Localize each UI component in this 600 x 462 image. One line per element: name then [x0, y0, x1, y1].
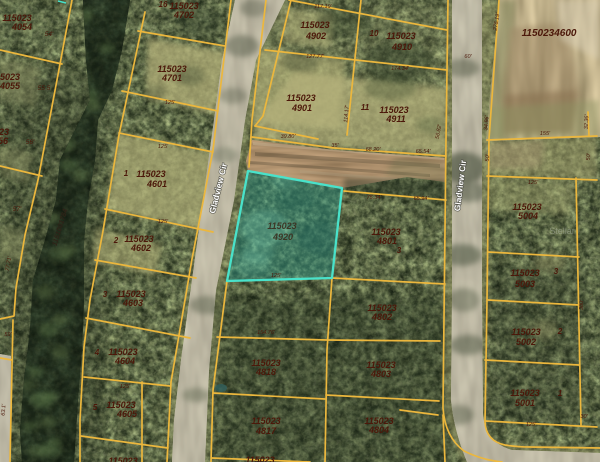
svg-text:4604: 4604 [114, 356, 135, 366]
svg-text:115023: 115023 [511, 327, 540, 337]
svg-text:4054: 4054 [11, 22, 32, 32]
svg-text:11: 11 [361, 103, 370, 112]
svg-text:115023: 115023 [386, 31, 415, 41]
svg-text:4902: 4902 [305, 31, 326, 41]
svg-text:2: 2 [557, 327, 563, 336]
svg-text:115023: 115023 [136, 169, 165, 179]
svg-text:117.19': 117.19' [314, 4, 332, 10]
svg-text:32.36': 32.36' [584, 113, 591, 129]
svg-text:68.20': 68.20' [366, 147, 382, 153]
svg-text:4701: 4701 [161, 73, 182, 83]
svg-text:Stellar: Stellar [549, 226, 575, 236]
svg-text:154.76': 154.76' [257, 330, 276, 336]
svg-text:1150234600: 1150234600 [522, 28, 577, 39]
svg-text:10: 10 [370, 29, 379, 38]
svg-text:1: 1 [124, 169, 129, 178]
svg-text:4910: 4910 [391, 42, 412, 52]
svg-text:155': 155' [540, 131, 551, 137]
svg-text:35': 35' [331, 143, 339, 149]
svg-text:4702: 4702 [173, 10, 194, 20]
svg-text:59': 59' [4, 332, 12, 338]
svg-text:1: 1 [558, 389, 563, 398]
svg-text:4605: 4605 [116, 409, 138, 419]
svg-text:4602: 4602 [130, 243, 151, 253]
svg-text:115023: 115023 [251, 416, 280, 426]
svg-text:54': 54' [45, 31, 54, 38]
svg-text:5002: 5002 [516, 337, 536, 347]
svg-text:115023: 115023 [245, 455, 274, 462]
svg-text:65.54': 65.54' [416, 149, 432, 155]
svg-text:57': 57' [13, 206, 22, 213]
svg-text:4901: 4901 [291, 103, 312, 113]
svg-text:5003: 5003 [515, 279, 535, 289]
svg-text:115023: 115023 [108, 456, 137, 462]
svg-text:4603: 4603 [122, 298, 143, 308]
svg-text:5001: 5001 [515, 398, 535, 408]
svg-text:75.34': 75.34' [367, 195, 383, 201]
svg-text:125': 125' [165, 100, 176, 106]
svg-text:4055: 4055 [0, 81, 21, 91]
svg-text:4817: 4817 [255, 426, 277, 436]
svg-text:115023: 115023 [510, 388, 539, 398]
svg-text:55 5: 55 5 [38, 85, 51, 92]
svg-text:4601: 4601 [146, 179, 167, 189]
svg-text:115023: 115023 [510, 268, 539, 278]
svg-text:125': 125' [526, 422, 537, 428]
svg-text:4: 4 [94, 348, 100, 357]
svg-text:4803: 4803 [370, 369, 391, 379]
svg-text:125': 125' [120, 384, 131, 390]
svg-text:65.94': 65.94' [414, 196, 430, 202]
svg-text:4911: 4911 [385, 114, 405, 124]
svg-text:56': 56' [26, 139, 35, 146]
svg-text:56: 56 [0, 136, 9, 146]
svg-text:3: 3 [554, 267, 559, 276]
svg-text:3: 3 [397, 246, 402, 255]
svg-text:16: 16 [159, 0, 168, 9]
svg-text:115023: 115023 [286, 93, 315, 103]
svg-text:4801: 4801 [376, 236, 397, 246]
svg-text:4920: 4920 [272, 232, 293, 242]
svg-text:39.80': 39.80' [281, 134, 297, 140]
svg-text:60': 60' [464, 54, 472, 60]
svg-text:115023: 115023 [300, 20, 329, 30]
svg-text:63.1': 63.1' [1, 403, 8, 416]
svg-text:125': 125' [528, 180, 539, 186]
svg-text:174.34': 174.34' [391, 66, 410, 72]
svg-text:4802: 4802 [371, 312, 392, 322]
svg-text:125': 125' [271, 273, 282, 279]
svg-text:380': 380' [579, 299, 586, 310]
svg-text:3: 3 [103, 290, 108, 299]
svg-text:5004: 5004 [518, 211, 538, 221]
svg-text:5: 5 [93, 403, 98, 412]
svg-text:2: 2 [113, 236, 119, 245]
svg-text:4818: 4818 [255, 367, 276, 377]
svg-text:4804: 4804 [368, 425, 389, 435]
svg-text:115023: 115023 [267, 221, 296, 231]
svg-text:125': 125' [158, 144, 169, 150]
svg-text:125': 125' [158, 219, 169, 225]
svg-text:127.77': 127.77' [306, 54, 325, 60]
svg-text:30': 30' [580, 414, 588, 420]
